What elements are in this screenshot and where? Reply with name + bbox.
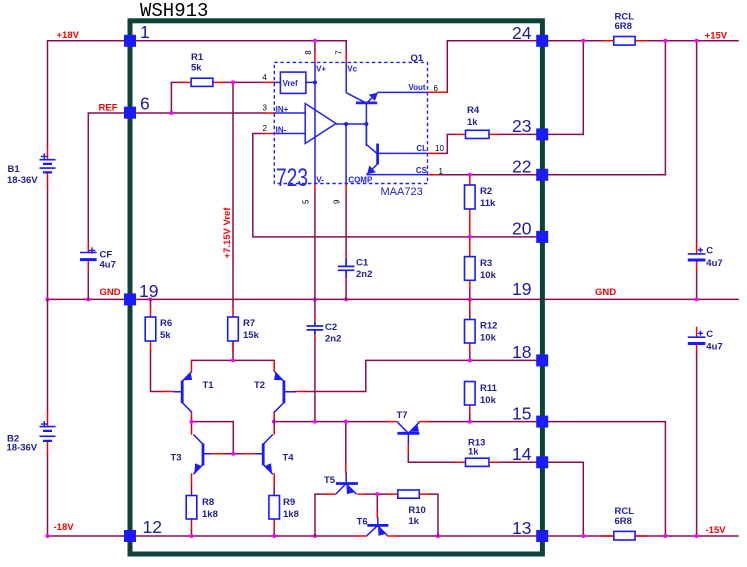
svg-text:C2: C2 <box>325 322 337 333</box>
svg-text:6: 6 <box>140 94 150 114</box>
svg-text:1k: 1k <box>467 117 478 128</box>
svg-text:V+: V+ <box>316 65 326 74</box>
svg-text:R8: R8 <box>202 497 214 508</box>
svg-text:1: 1 <box>439 167 444 176</box>
svg-text:T4: T4 <box>283 453 295 464</box>
svg-text:4u7: 4u7 <box>100 260 116 271</box>
svg-text:WSH913: WSH913 <box>140 0 208 22</box>
svg-text:R3: R3 <box>480 258 492 269</box>
svg-text:10k: 10k <box>480 333 497 344</box>
svg-text:10: 10 <box>435 144 444 153</box>
svg-text:4u7: 4u7 <box>706 258 722 269</box>
svg-text:22: 22 <box>512 157 531 177</box>
svg-text:11k: 11k <box>480 198 496 209</box>
svg-text:V-: V- <box>316 176 324 185</box>
svg-text:REF: REF <box>99 102 118 113</box>
svg-text:2n2: 2n2 <box>325 334 341 345</box>
svg-text:19: 19 <box>512 279 531 299</box>
svg-text:13: 13 <box>512 518 531 538</box>
svg-text:-18V: -18V <box>54 522 75 533</box>
svg-text:4: 4 <box>262 73 267 82</box>
svg-text:COMP: COMP <box>348 176 373 185</box>
svg-text:Vout: Vout <box>408 83 426 92</box>
svg-text:8: 8 <box>304 50 313 55</box>
svg-text:T7: T7 <box>397 410 408 421</box>
svg-text:14: 14 <box>512 444 532 464</box>
svg-text:Vc: Vc <box>347 65 357 74</box>
svg-text:7: 7 <box>334 50 343 55</box>
svg-text:5k: 5k <box>191 63 202 74</box>
svg-text:6R8: 6R8 <box>615 516 632 527</box>
svg-text:R7: R7 <box>243 318 255 329</box>
svg-text:18-36V: 18-36V <box>7 443 38 454</box>
svg-text:9: 9 <box>333 199 342 204</box>
svg-text:2n2: 2n2 <box>356 269 372 280</box>
svg-text:1k: 1k <box>408 516 419 527</box>
svg-text:CL: CL <box>416 144 427 153</box>
svg-text:CS: CS <box>416 166 428 175</box>
svg-text:R1: R1 <box>191 52 204 63</box>
svg-text:R10: R10 <box>408 505 425 516</box>
svg-text:4u7: 4u7 <box>706 342 722 353</box>
svg-text:10k: 10k <box>480 270 497 281</box>
svg-text:T5: T5 <box>324 475 336 486</box>
svg-text:T2: T2 <box>254 380 265 391</box>
svg-text:T3: T3 <box>171 453 182 464</box>
svg-text:18: 18 <box>512 342 531 362</box>
svg-text:R9: R9 <box>283 497 295 508</box>
svg-text:1: 1 <box>140 22 150 42</box>
svg-text:R2: R2 <box>480 186 492 197</box>
svg-text:6: 6 <box>434 84 439 93</box>
svg-text:1k: 1k <box>468 447 479 458</box>
svg-text:MAA723: MAA723 <box>381 186 423 198</box>
svg-text:+18V: +18V <box>57 30 80 41</box>
svg-text:T6: T6 <box>357 516 368 527</box>
svg-text:19: 19 <box>139 281 158 301</box>
svg-text:2: 2 <box>263 124 268 133</box>
svg-text:1k8: 1k8 <box>283 509 299 520</box>
svg-text:15k: 15k <box>243 330 260 341</box>
svg-text:18-36V: 18-36V <box>7 175 38 186</box>
svg-text:R12: R12 <box>480 321 497 332</box>
svg-text:R11: R11 <box>480 383 498 394</box>
svg-text:5: 5 <box>302 199 311 204</box>
svg-text:GND: GND <box>595 287 616 298</box>
svg-text:6R8: 6R8 <box>615 21 632 32</box>
svg-text:1k8: 1k8 <box>202 509 218 520</box>
svg-text:3: 3 <box>263 104 268 113</box>
svg-text:23: 23 <box>512 116 531 136</box>
svg-text:IN+: IN+ <box>276 105 289 114</box>
svg-text:15: 15 <box>512 403 531 423</box>
svg-text:R6: R6 <box>160 318 172 329</box>
svg-text:12: 12 <box>143 517 162 537</box>
svg-text:+7.15V Vref: +7.15V Vref <box>222 207 233 259</box>
svg-text:C: C <box>706 246 713 257</box>
svg-text:723: 723 <box>276 164 308 192</box>
svg-text:C: C <box>706 329 713 340</box>
svg-text:5k: 5k <box>160 330 171 341</box>
svg-text:+15V: +15V <box>705 31 728 42</box>
svg-text:10k: 10k <box>480 395 497 406</box>
svg-text:24: 24 <box>512 23 532 43</box>
svg-text:20: 20 <box>512 219 532 239</box>
svg-text:IN-: IN- <box>276 125 287 134</box>
svg-text:B1: B1 <box>8 164 21 175</box>
svg-text:R4: R4 <box>467 105 480 116</box>
svg-text:Q1: Q1 <box>411 53 424 64</box>
svg-text:T1: T1 <box>203 380 215 391</box>
svg-text:C1: C1 <box>356 258 369 269</box>
svg-text:-15V: -15V <box>706 525 727 536</box>
svg-text:GND: GND <box>100 287 121 298</box>
svg-text:Vref: Vref <box>283 79 298 88</box>
